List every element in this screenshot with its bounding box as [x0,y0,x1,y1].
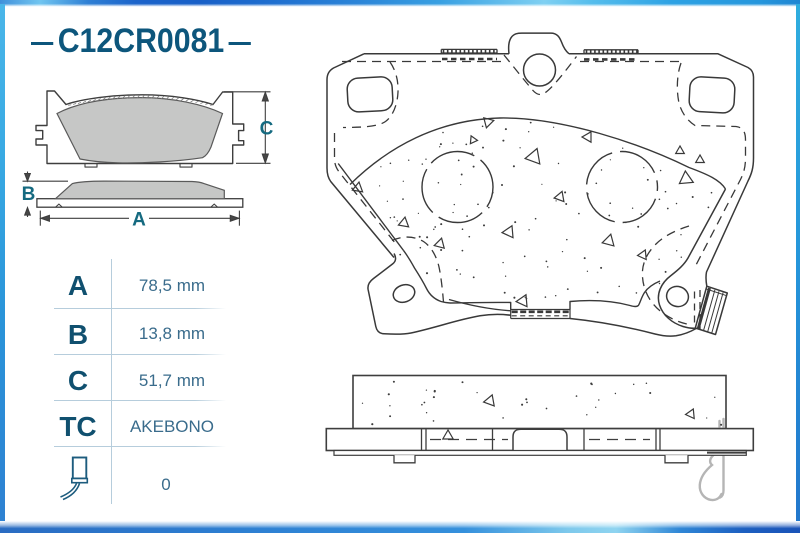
svg-text:A: A [132,210,146,231]
svg-text:C: C [260,119,274,140]
svg-text:B: B [22,184,36,205]
